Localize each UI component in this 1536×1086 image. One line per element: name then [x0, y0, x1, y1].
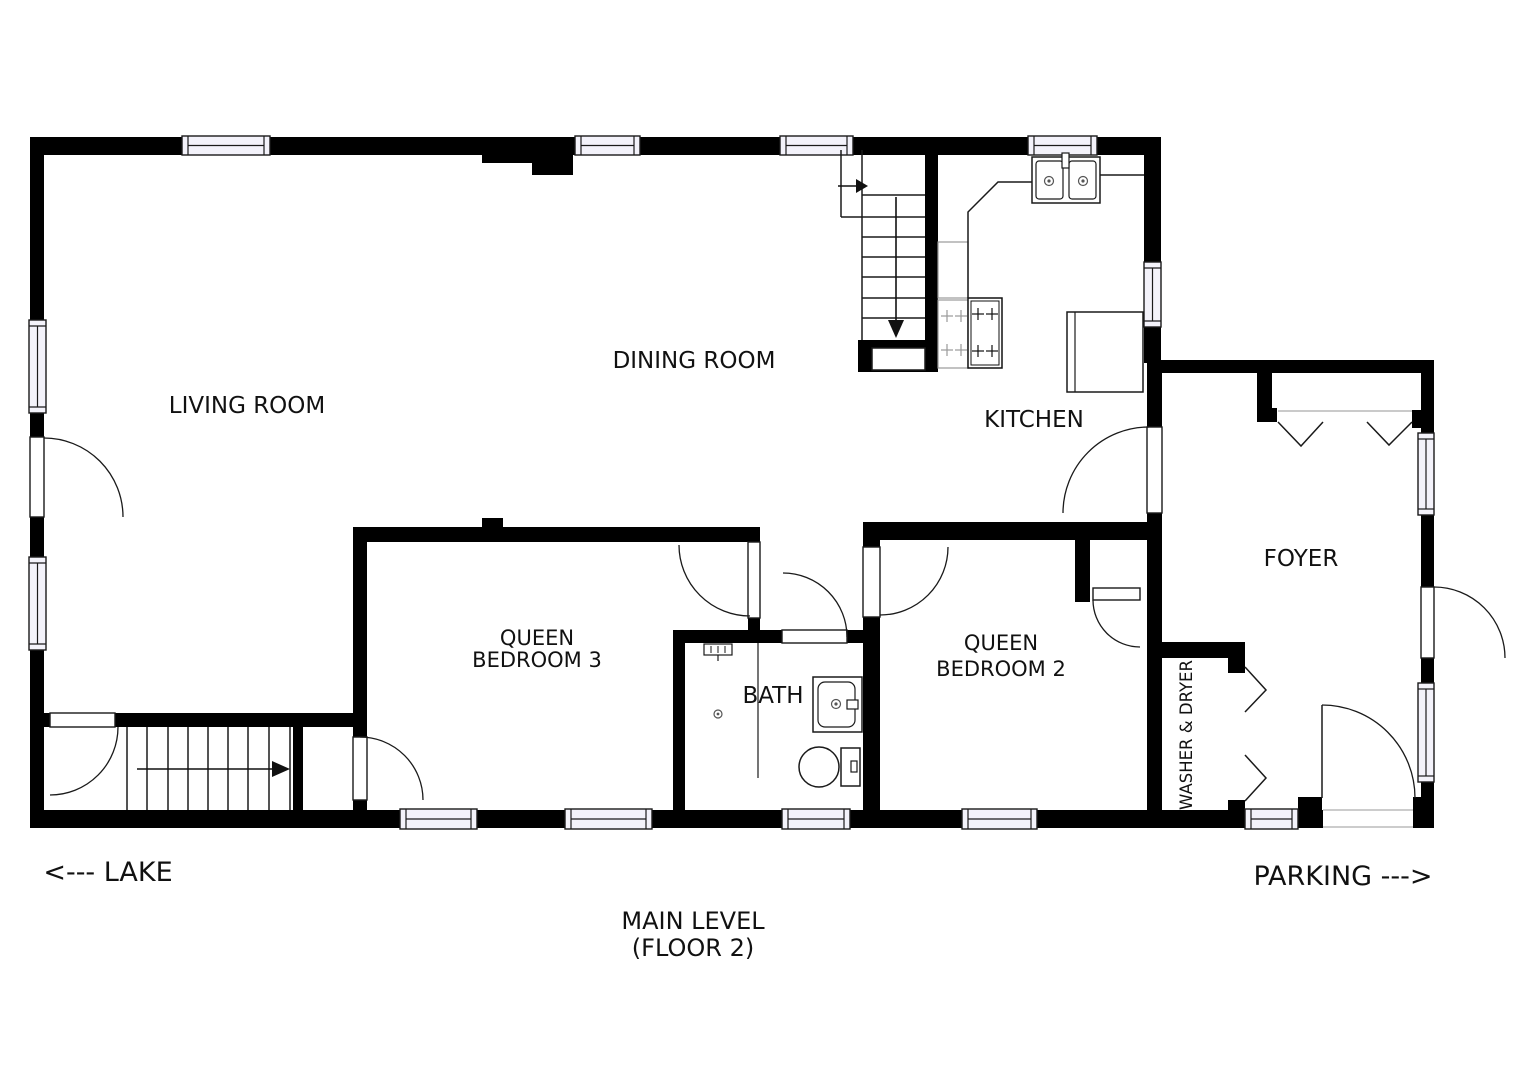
wall-bottom-block-b [1413, 797, 1434, 811]
sink-faucet-right-dot [1081, 179, 1084, 182]
wall-stairlower-top-a [44, 713, 50, 727]
wall-bath-top-a [673, 630, 782, 643]
wall-top-notch-b [532, 150, 573, 175]
door-bedroom2-slab [863, 547, 880, 617]
wall-washerdryer-top [1162, 642, 1245, 658]
wall-top-notch-a [482, 150, 532, 163]
wall-bedroom2-west-a [863, 540, 880, 547]
wall-bedroom3-top [353, 527, 760, 542]
door-living-room-slab [30, 437, 44, 517]
wall-stairlower-right [293, 713, 303, 823]
wall-bedroom3-bump [482, 518, 503, 527]
vanity-soap [847, 700, 858, 709]
label-bedroom3-line1: QUEEN [500, 626, 574, 650]
wall-stairlower-top-b [115, 713, 353, 727]
label-parking: PARKING ---> [1253, 861, 1432, 892]
wall-bottom-block-a [1298, 797, 1322, 811]
wall-foyercloset-block-r [1412, 410, 1421, 428]
wall-washerdryer-block-b [1228, 800, 1245, 812]
label-bath: BATH [742, 683, 803, 709]
wall-bedroom2-west-b [863, 617, 880, 812]
label-bedroom2-line2: BEDROOM 2 [936, 657, 1066, 681]
floor-plan: LIVING ROOMDINING ROOMKITCHENFOYERBATHQU… [0, 0, 1536, 1086]
label-living-room: LIVING ROOM [169, 393, 326, 419]
label-bedroom3-line2: BEDROOM 3 [472, 648, 602, 672]
wall-east-lower [1147, 513, 1162, 813]
toilet-bowl [799, 747, 839, 787]
stove-right-unit [968, 298, 1002, 368]
door-bedroom3-west-slab [353, 737, 367, 800]
stove-left-unit [938, 300, 968, 368]
wall-kitchen-east [1144, 137, 1161, 363]
door-stair-landing-slab [50, 713, 115, 727]
understair-box [872, 348, 925, 370]
wall-bedroom3-west-a [353, 542, 367, 737]
shower-drain-dot [717, 713, 720, 716]
door-bath-slab [782, 630, 847, 643]
wall-foyer-top [1147, 360, 1434, 373]
label-dining-room: DINING ROOM [613, 348, 776, 374]
label-kitchen: KITCHEN [984, 407, 1084, 433]
door-bedroom2-closet-slab [1093, 588, 1140, 600]
label-foyer: FOYER [1264, 546, 1339, 572]
wall-foyercloset-stub-a [1257, 373, 1272, 408]
wall-washerdryer-block-a [1228, 658, 1245, 673]
wall-bath-west [673, 643, 685, 810]
door-bedroom3-east-slab [748, 542, 760, 618]
label-floor-2: (FLOOR 2) [632, 934, 754, 962]
wall-bedroom3-east [748, 618, 760, 632]
wall-foyercloset-stub-b [1257, 408, 1277, 422]
sink-divider-tab [1062, 153, 1069, 168]
plan-background [0, 0, 1536, 1086]
toilet-flush-button [851, 761, 857, 772]
fridge [1067, 312, 1143, 392]
entry-doorway-gap [1323, 810, 1413, 828]
vanity-faucet-dot [834, 702, 837, 705]
label-washer-dryer: WASHER & DRYER [1177, 660, 1196, 810]
label-lake: <--- LAKE [43, 857, 172, 888]
door-foyer-side-exit-slab [1421, 587, 1434, 658]
wall-bedroom2-top [863, 522, 1162, 540]
sink-faucet-left-dot [1047, 179, 1050, 182]
label-main-level: MAIN LEVEL [621, 907, 765, 935]
dishwasher [938, 242, 968, 298]
label-bedroom2-line1: QUEEN [964, 631, 1038, 655]
wall-bedroom2-closet [1075, 540, 1090, 602]
wall-stair-kitchen [925, 150, 938, 372]
wall-bottom [30, 810, 1434, 828]
floor-plan-page: LIVING ROOMDINING ROOMKITCHENFOYERBATHQU… [0, 0, 1536, 1086]
wall-bedroom3-west-b [353, 800, 367, 812]
door-kitchen-foyer-slab [1147, 427, 1162, 513]
wall-east-upper [1147, 373, 1162, 427]
